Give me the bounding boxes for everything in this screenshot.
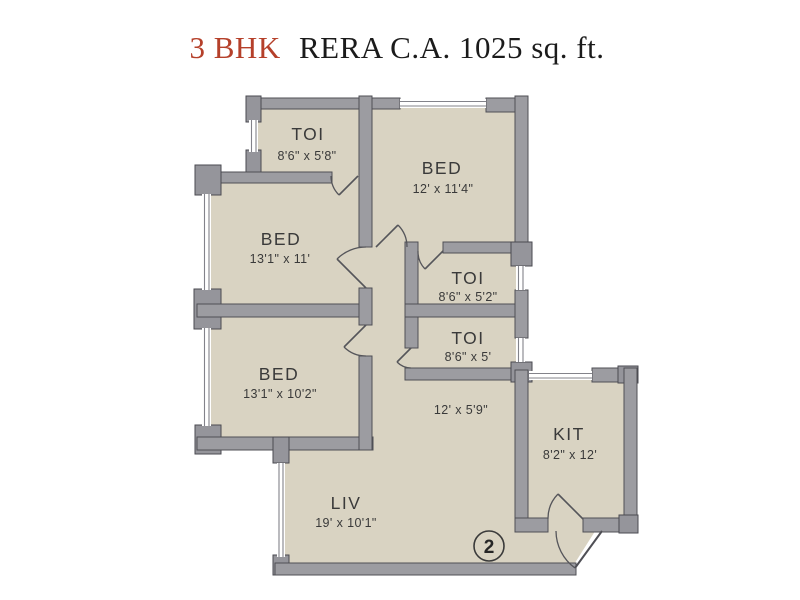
room-toi3-dims: 8'6" x 5' <box>445 350 492 364</box>
room-bed2-dims: 13'1" x 11' <box>250 252 311 266</box>
window-bed3-left <box>202 328 211 426</box>
room-toi1-dims: 8'6" x 5'8" <box>277 149 336 163</box>
plan-title: 3 BHK RERA C.A. 1025 sq. ft. <box>190 30 605 65</box>
window-toi1-left <box>249 120 258 152</box>
floor-plan-canvas: 3 BHK RERA C.A. 1025 sq. ft. <box>0 0 800 600</box>
room-bed3-name: BED <box>259 364 299 384</box>
window-bed2-left <box>202 194 211 290</box>
floor-plan-page: 3 BHK RERA C.A. 1025 sq. ft. <box>0 0 800 600</box>
window-toi2-right <box>516 266 525 290</box>
window-bed1-top <box>400 99 486 108</box>
room-toi3-name: TOI <box>451 328 484 348</box>
room-kit-dims: 8'2" x 12' <box>543 448 597 462</box>
window-kit-top <box>529 371 592 380</box>
room-toi3: TOI 8'6" x 5' <box>445 328 492 364</box>
room-toi1-name: TOI <box>291 124 324 144</box>
unit-marker-number: 2 <box>484 537 495 558</box>
room-liv-name: LIV <box>331 493 362 513</box>
window-liv-left <box>277 463 285 557</box>
room-bed2-name: BED <box>261 229 301 249</box>
room-bed1-dims: 12' x 11'4" <box>413 182 474 196</box>
plan-title-bhk: 3 BHK <box>190 30 281 65</box>
passage-dims: 12' x 5'9" <box>434 403 488 417</box>
room-liv-dims: 19' x 10'1" <box>315 516 377 530</box>
window-toi3-right <box>516 338 525 362</box>
room-toi2-dims: 8'6" x 5'2" <box>438 290 497 304</box>
room-bed3-dims: 13'1" x 10'2" <box>243 387 317 401</box>
room-bed1-name: BED <box>422 158 462 178</box>
passage: 12' x 5'9" <box>434 403 488 417</box>
plan-title-rera: RERA C.A. 1025 sq. ft. <box>299 30 605 65</box>
room-kit-name: KIT <box>553 424 585 444</box>
room-toi2-name: TOI <box>451 268 484 288</box>
